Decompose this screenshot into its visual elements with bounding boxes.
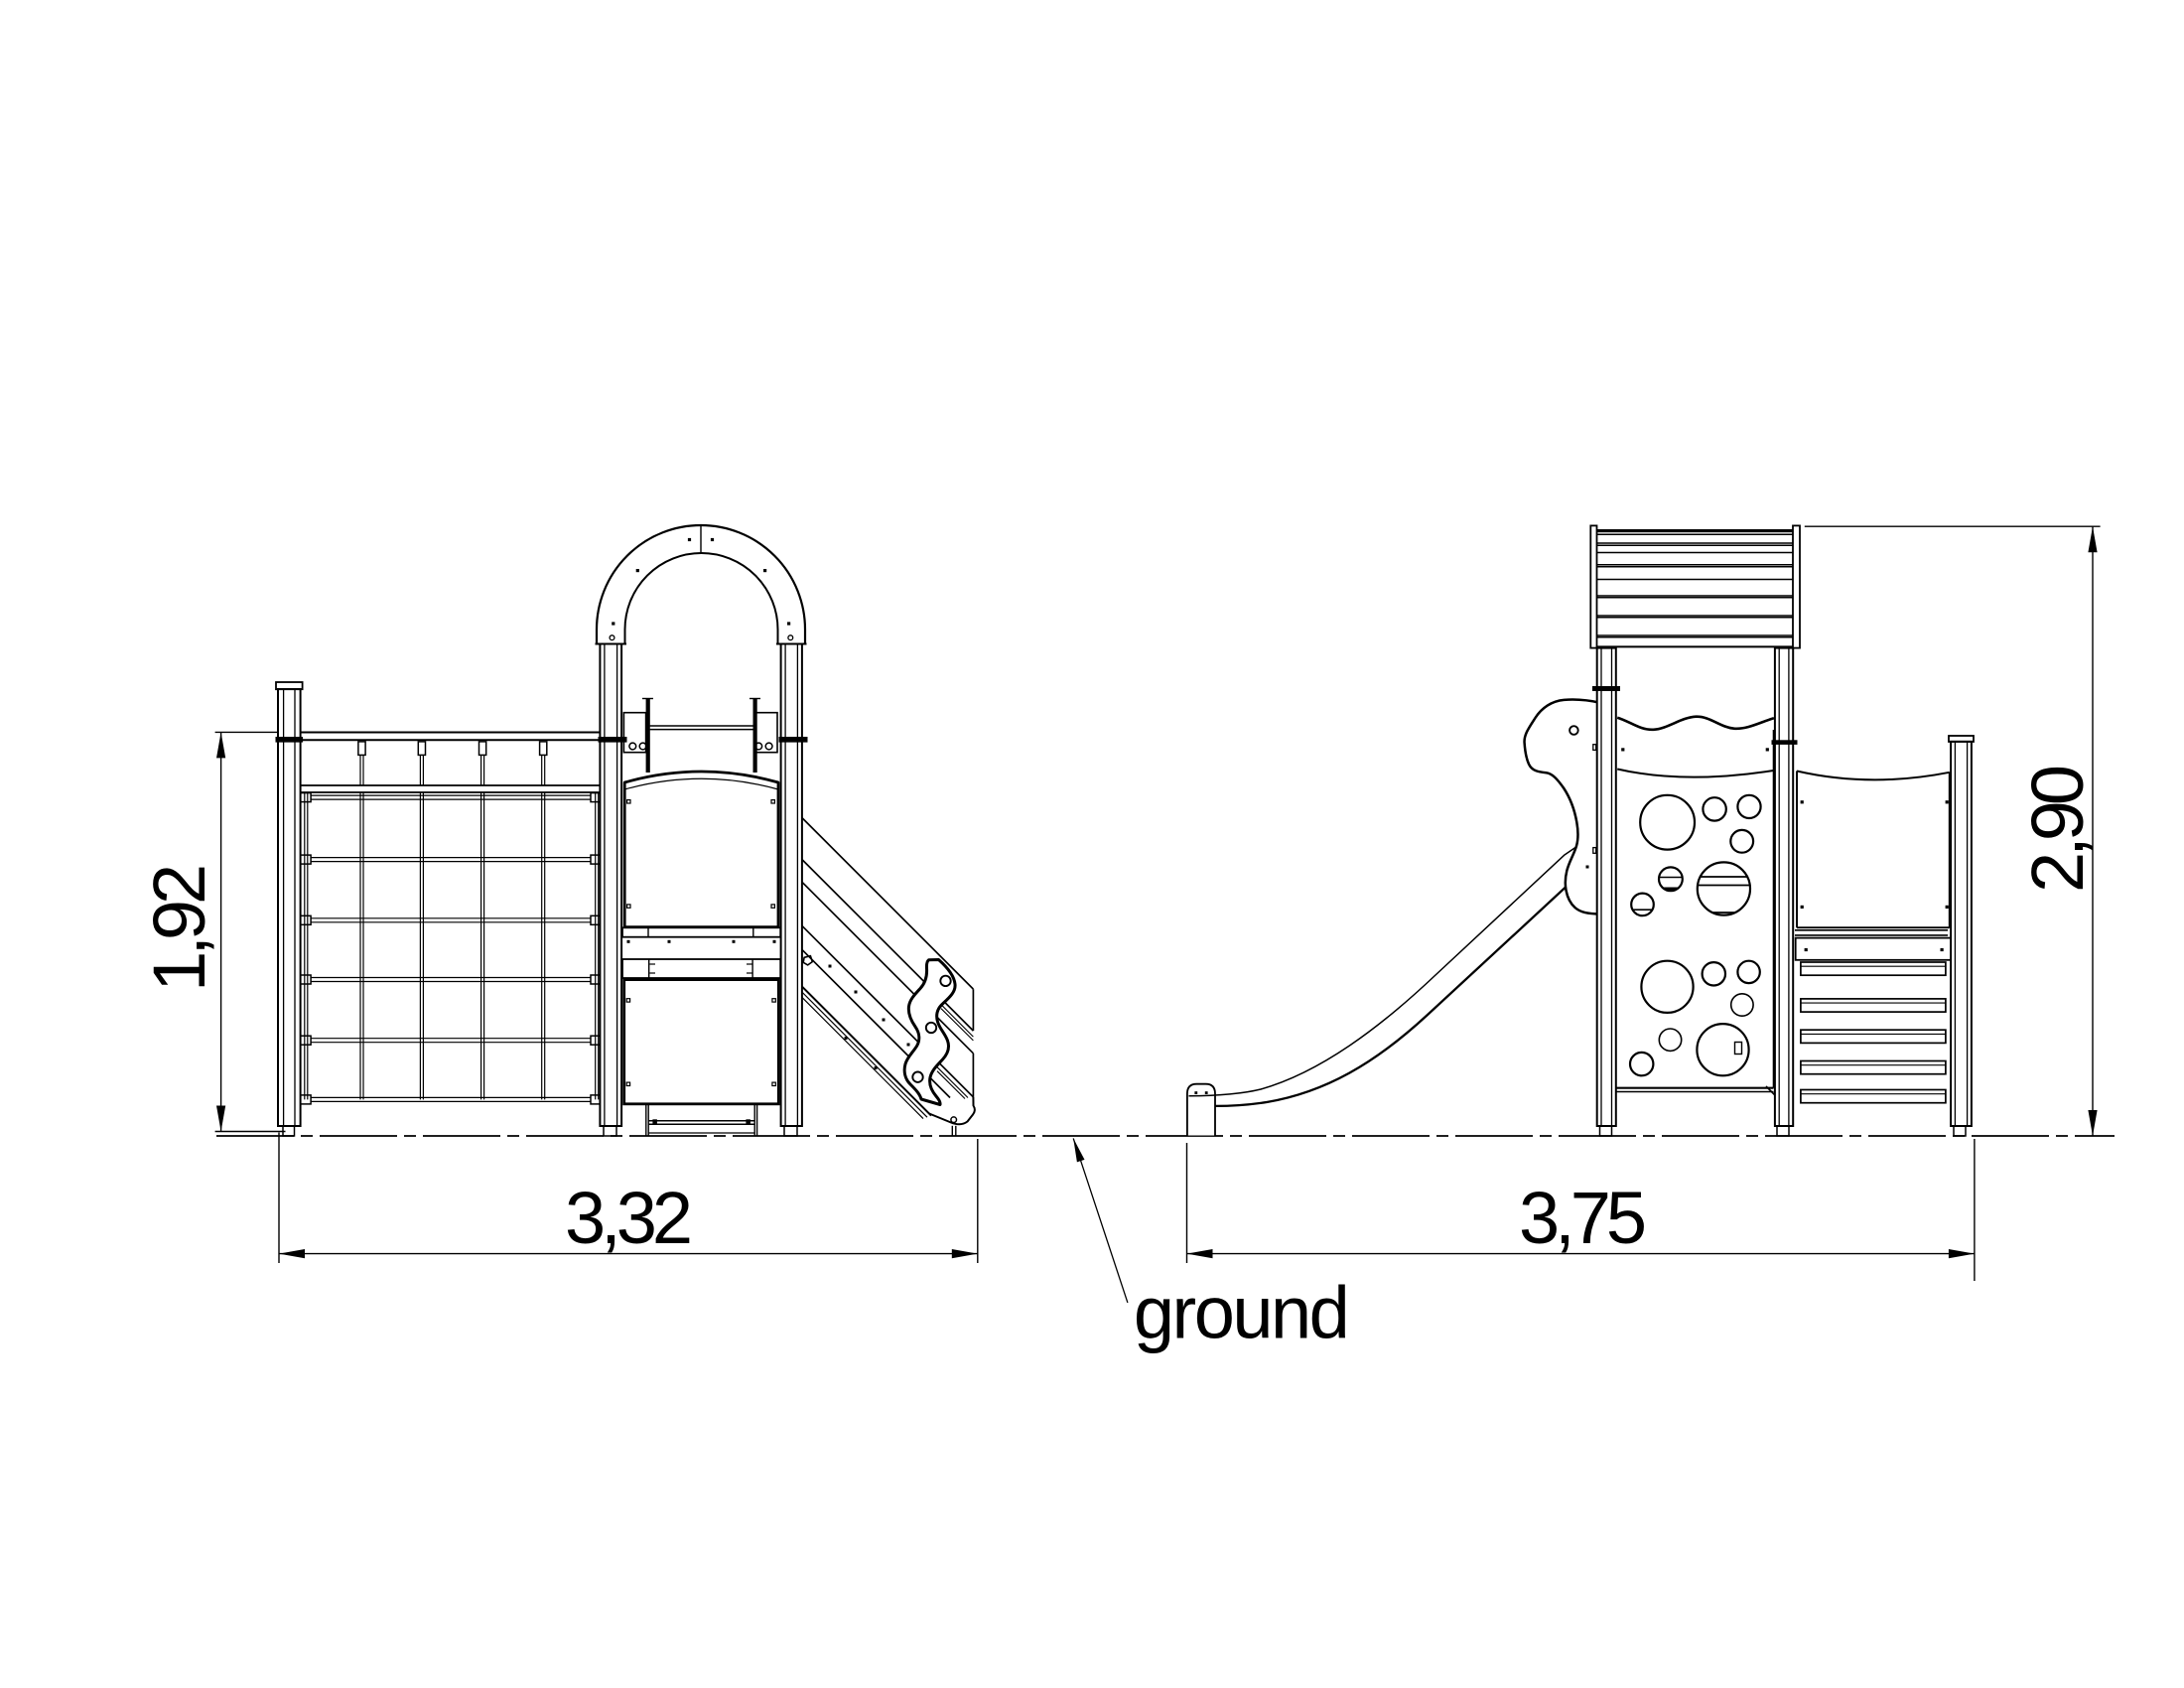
svg-text:ground: ground: [1134, 1272, 1347, 1354]
svg-text:2,90: 2,90: [2016, 767, 2099, 893]
svg-text:3,32: 3,32: [565, 1177, 690, 1259]
svg-text:3,75: 3,75: [1519, 1177, 1645, 1259]
svg-text:1,92: 1,92: [138, 867, 220, 992]
